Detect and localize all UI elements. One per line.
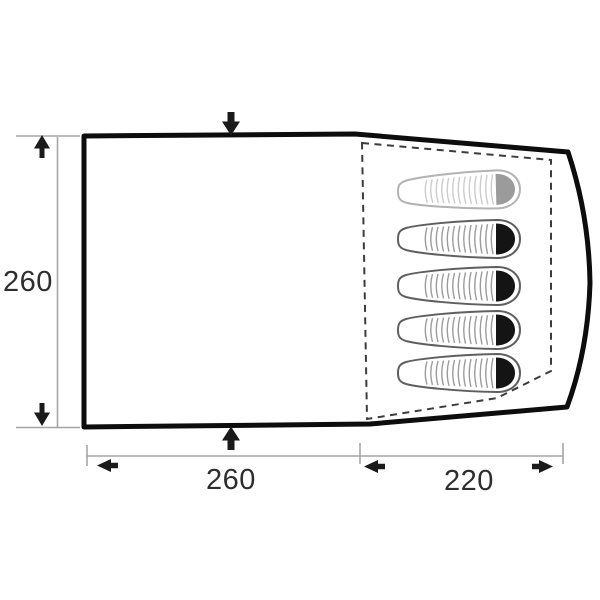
arrow-left-icon xyxy=(364,460,385,473)
left-height-dimension: 260 xyxy=(3,135,80,428)
tent-floorplan-diagram: 260 260 220 xyxy=(0,0,600,600)
bottom-door-arrow-up-icon xyxy=(222,427,240,451)
bottom-left-width-label: 260 xyxy=(206,464,256,496)
sleeping-bag-occupied xyxy=(398,311,520,349)
sleeping-bag-occupied xyxy=(398,267,520,305)
arrow-left-icon xyxy=(97,459,118,472)
height-dimension-label: 260 xyxy=(3,266,53,298)
arrow-up-icon xyxy=(34,135,50,158)
floorplan-canvas: 260 260 220 xyxy=(0,0,600,600)
sleeping-bag-occupied xyxy=(398,220,520,258)
arrow-down-icon xyxy=(34,403,50,426)
bottom-width-dimensions: 260 220 xyxy=(87,443,563,497)
sleeping-bag-occupied xyxy=(398,354,520,392)
top-door-arrow-down-icon xyxy=(222,112,240,136)
bottom-right-width-label: 220 xyxy=(444,465,494,497)
arrow-right-icon xyxy=(532,460,553,473)
